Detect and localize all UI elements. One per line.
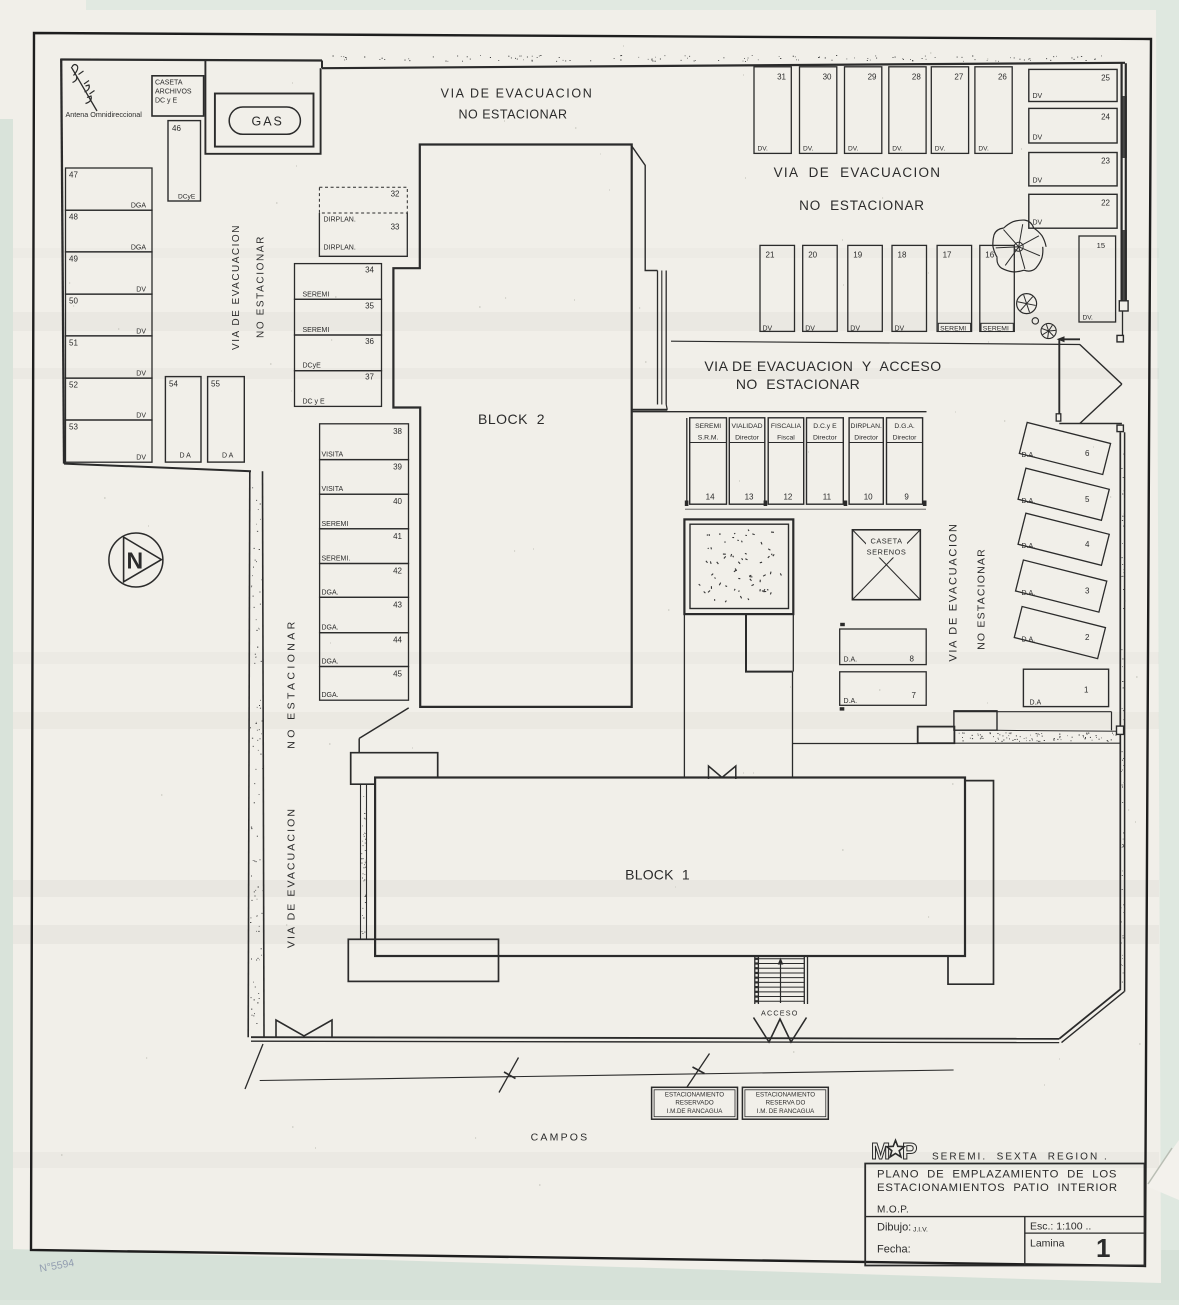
svg-text:P: P (902, 1138, 917, 1164)
svg-text:D.A.: D.A. (1022, 590, 1036, 597)
svg-text:Director: Director (854, 435, 879, 442)
svg-text:1: 1 (1084, 686, 1089, 695)
svg-text:D.A.: D.A. (1022, 636, 1036, 643)
svg-text:45: 45 (393, 670, 402, 679)
svg-text:BLOCK 2: BLOCK 2 (478, 411, 545, 427)
svg-text:D.G.A.: D.G.A. (894, 423, 915, 430)
svg-text:26: 26 (998, 73, 1007, 82)
svg-text:NO ESTACIONAR: NO ESTACIONAR (458, 108, 567, 122)
svg-text:S.R.M.: S.R.M. (698, 435, 719, 442)
svg-text:Director: Director (893, 435, 918, 442)
svg-text:38: 38 (393, 427, 402, 436)
svg-text:ESTACIONAMIENTO: ESTACIONAMIENTO (665, 1092, 724, 1099)
svg-text:21: 21 (766, 251, 775, 260)
svg-text:CASETA: CASETA (155, 80, 183, 87)
svg-text:34: 34 (365, 266, 374, 275)
svg-text:41: 41 (393, 532, 402, 541)
svg-text:DC y E: DC y E (303, 398, 326, 405)
svg-text:VISITA: VISITA (322, 486, 344, 493)
svg-text:BLOCK 1: BLOCK 1 (625, 867, 690, 883)
svg-text:VIA DE EVACUACION: VIA DE EVACUACION (286, 807, 298, 948)
svg-text:17: 17 (943, 251, 952, 260)
svg-text:M.O.P.: M.O.P. (877, 1205, 909, 1216)
svg-text:VIA DE EVACUACION: VIA DE EVACUACION (441, 87, 594, 101)
svg-text:SEREMI: SEREMI (322, 521, 349, 528)
svg-text:Esc.: 1:100 ..: Esc.: 1:100 .. (1030, 1221, 1091, 1233)
svg-text:D.C.y E: D.C.y E (813, 423, 837, 430)
svg-text:DV.: DV. (978, 146, 989, 153)
svg-text:Director: Director (735, 435, 760, 442)
svg-text:DGA.: DGA. (322, 589, 339, 596)
svg-text:32: 32 (391, 190, 400, 199)
svg-text:Director: Director (813, 435, 838, 442)
svg-text:10: 10 (864, 493, 873, 502)
svg-text:DV: DV (1033, 135, 1043, 142)
svg-text:50: 50 (69, 297, 78, 306)
svg-text:ESTACIONAMIENTO: ESTACIONAMIENTO (756, 1092, 815, 1099)
svg-text:18: 18 (898, 251, 907, 260)
svg-text:4: 4 (1085, 540, 1090, 549)
svg-text:22: 22 (1101, 198, 1110, 207)
svg-text:9: 9 (904, 493, 909, 502)
svg-text:29: 29 (868, 73, 877, 82)
svg-text:NO ESTACIONAR: NO ESTACIONAR (736, 376, 860, 392)
svg-text:SEREMI: SEREMI (940, 326, 966, 333)
svg-text:13: 13 (745, 493, 754, 502)
svg-text:NO ESTACIONAR: NO ESTACIONAR (976, 548, 988, 650)
svg-text:I.M.DE RANCAGUA: I.M.DE RANCAGUA (667, 1108, 724, 1115)
svg-text:DV.: DV. (848, 146, 859, 153)
svg-text:11: 11 (823, 493, 832, 502)
svg-text:27: 27 (954, 73, 963, 82)
svg-text:6: 6 (1085, 449, 1090, 458)
svg-text:GAS: GAS (252, 115, 284, 129)
svg-text:D A: D A (180, 453, 192, 460)
svg-text:20: 20 (808, 251, 817, 260)
svg-text:46: 46 (172, 124, 181, 133)
svg-text:D.A.: D.A. (844, 698, 858, 705)
svg-text:ARCHIVOS: ARCHIVOS (155, 89, 192, 96)
svg-text:15: 15 (1097, 241, 1105, 250)
svg-text:DV: DV (136, 328, 146, 335)
svg-text:RESERVADO: RESERVADO (675, 1100, 713, 1107)
svg-text:SEREMI: SEREMI (303, 291, 330, 298)
svg-text:DV: DV (805, 326, 815, 333)
svg-text:44: 44 (393, 636, 402, 645)
svg-text:DV: DV (850, 326, 860, 333)
svg-text:7: 7 (912, 691, 917, 700)
svg-text:VIALIDAD: VIALIDAD (732, 423, 763, 430)
svg-text:53: 53 (69, 423, 78, 432)
svg-text:SEREMI: SEREMI (303, 327, 330, 334)
svg-text:VIA DE EVACUACION Y ACCESO: VIA DE EVACUACION Y ACCESO (704, 358, 941, 374)
svg-text:SEREMI: SEREMI (983, 326, 1009, 333)
svg-text:Antena Omnidireccional: Antena Omnidireccional (66, 110, 143, 119)
svg-text:DV: DV (136, 455, 146, 462)
svg-text:D.A.: D.A. (1022, 543, 1036, 550)
svg-text:49: 49 (69, 254, 78, 263)
svg-text:VIA DE EVACUACION: VIA DE EVACUACION (774, 165, 942, 180)
svg-text:DV.: DV. (1083, 315, 1094, 322)
svg-text:DV: DV (1033, 93, 1043, 100)
svg-text:31: 31 (777, 73, 786, 82)
svg-text:DV: DV (763, 326, 773, 333)
svg-text:DV: DV (1033, 220, 1043, 227)
svg-text:SEREMI. SEXTA REGION .: SEREMI. SEXTA REGION . (932, 1152, 1109, 1163)
svg-text:24: 24 (1101, 112, 1110, 121)
svg-text:30: 30 (823, 73, 832, 82)
svg-text:DV.: DV. (892, 146, 903, 153)
svg-text:Fiscal: Fiscal (777, 435, 795, 442)
svg-text:D.A.: D.A. (844, 657, 858, 664)
svg-text:DV: DV (895, 326, 905, 333)
svg-text:J.I.V.: J.I.V. (913, 1227, 928, 1234)
svg-text:DGA.: DGA. (322, 625, 339, 632)
svg-text:51: 51 (69, 338, 78, 347)
svg-text:M: M (871, 1138, 890, 1164)
svg-text:VIA DE EVACUACION: VIA DE EVACUACION (231, 224, 242, 350)
svg-text:VISITA: VISITA (322, 452, 344, 459)
svg-text:NO ESTACIONAR: NO ESTACIONAR (286, 618, 298, 748)
svg-text:SERENOS: SERENOS (867, 548, 907, 557)
svg-text:1: 1 (1096, 1233, 1110, 1263)
svg-text:DV: DV (136, 413, 146, 420)
svg-text:FISCALIA: FISCALIA (771, 423, 802, 430)
svg-text:RESERVA DO: RESERVA DO (766, 1100, 806, 1107)
svg-text:55: 55 (211, 380, 220, 389)
svg-text:33: 33 (391, 223, 400, 232)
svg-text:DC y E: DC y E (155, 98, 178, 105)
svg-text:D A: D A (222, 453, 234, 460)
svg-text:43: 43 (393, 600, 402, 609)
svg-text:DV.: DV. (758, 146, 769, 153)
svg-text:ACCESO: ACCESO (761, 1009, 799, 1018)
svg-text:14: 14 (706, 493, 715, 502)
svg-text:Lamina: Lamina (1030, 1238, 1065, 1250)
svg-text:36: 36 (365, 337, 374, 346)
svg-text:8: 8 (910, 655, 915, 664)
svg-text:35: 35 (365, 301, 374, 310)
svg-text:DCyE: DCyE (178, 194, 196, 201)
svg-text:I.M. DE RANCAGUA: I.M. DE RANCAGUA (757, 1108, 815, 1115)
svg-text:23: 23 (1101, 157, 1110, 166)
svg-text:Dibujo:: Dibujo: (877, 1222, 911, 1234)
svg-text:D.A: D.A (1030, 700, 1042, 707)
svg-text:PLANO DE EMPLAZAMIENTO DE: PLANO DE EMPLAZAMIENTO DE LOS (877, 1169, 1117, 1181)
svg-text:DGA: DGA (131, 203, 147, 210)
svg-text:ESTACIONAMIENTOS PATIO INTER: ESTACIONAMIENTOS PATIO INTERIOR (877, 1182, 1118, 1194)
svg-text:48: 48 (69, 213, 78, 222)
svg-text:12: 12 (783, 493, 792, 502)
svg-text:DGA: DGA (131, 244, 147, 251)
svg-text:19: 19 (853, 251, 862, 260)
svg-text:5: 5 (1085, 495, 1090, 504)
svg-text:NO ESTACIONAR: NO ESTACIONAR (256, 235, 267, 338)
svg-text:D.A.: D.A. (1022, 452, 1036, 459)
svg-text:DV.: DV. (803, 146, 814, 153)
svg-text:DV: DV (136, 287, 146, 294)
svg-text:40: 40 (393, 497, 402, 506)
svg-text:37: 37 (365, 373, 374, 382)
svg-text:DIRPLAN.: DIRPLAN. (324, 245, 356, 252)
svg-text:47: 47 (69, 171, 78, 180)
svg-text:N: N (127, 548, 144, 574)
svg-text:D.A.: D.A. (1022, 498, 1036, 505)
svg-text:DIRPLAN.: DIRPLAN. (324, 217, 356, 224)
svg-text:DGA.: DGA. (322, 692, 339, 699)
svg-text:VIA DE EVACUACION: VIA DE EVACUACION (948, 522, 960, 661)
svg-text:16: 16 (985, 251, 994, 260)
svg-text:3: 3 (1085, 587, 1090, 596)
svg-text:SEREMI: SEREMI (695, 423, 721, 430)
svg-text:SEREMI.: SEREMI. (322, 556, 351, 563)
svg-text:CAMPOS: CAMPOS (531, 1132, 590, 1144)
svg-text:CASETA: CASETA (870, 537, 902, 546)
svg-text:42: 42 (393, 567, 402, 576)
svg-text:DGA.: DGA. (322, 659, 339, 666)
svg-text:28: 28 (912, 73, 921, 82)
svg-text:25: 25 (1101, 73, 1110, 82)
svg-text:NO ESTACIONAR: NO ESTACIONAR (799, 198, 925, 213)
svg-text:54: 54 (169, 380, 178, 389)
svg-text:Fecha:: Fecha: (877, 1244, 911, 1256)
svg-text:DIRPLAN.: DIRPLAN. (851, 423, 882, 430)
svg-text:2: 2 (1085, 633, 1090, 642)
svg-text:DV: DV (1033, 177, 1043, 184)
svg-text:DV.: DV. (935, 146, 946, 153)
svg-text:DCyE: DCyE (303, 363, 322, 370)
svg-text:DV: DV (136, 371, 146, 378)
svg-text:39: 39 (393, 463, 402, 472)
svg-text:52: 52 (69, 381, 78, 390)
